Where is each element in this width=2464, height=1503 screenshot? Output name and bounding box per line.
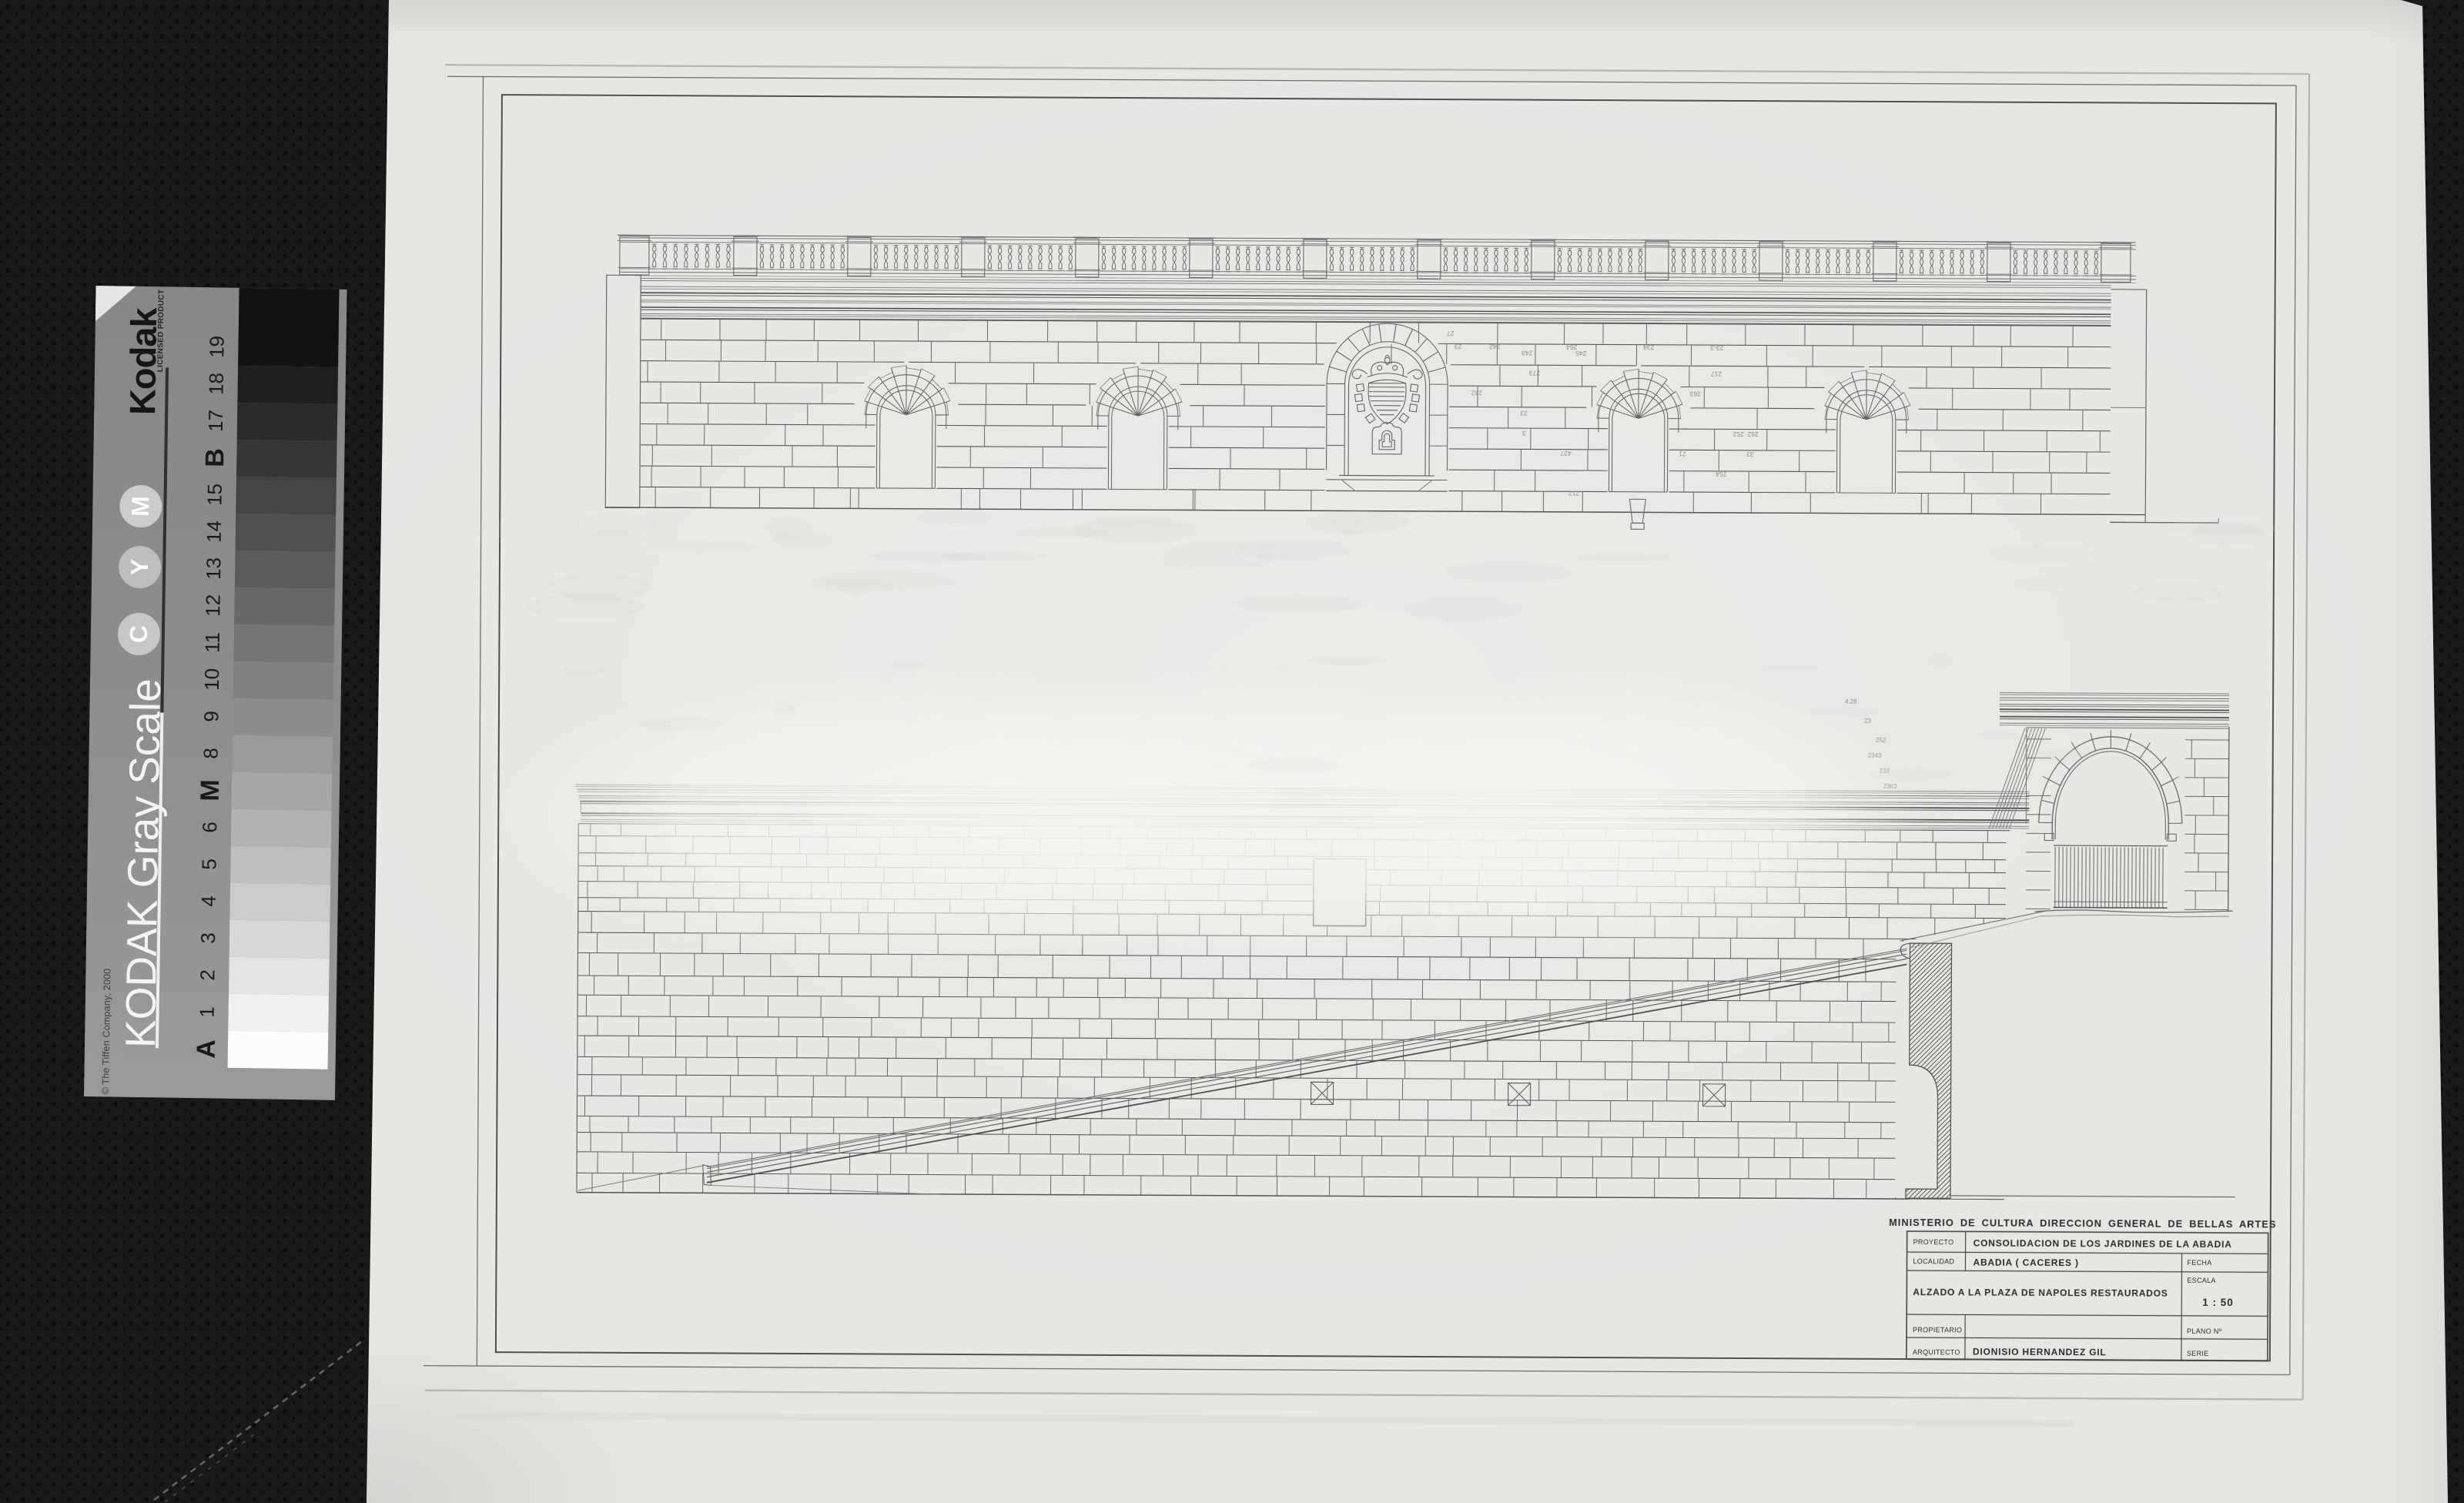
svg-text:3: 3 <box>1522 430 1526 437</box>
svg-text:252: 252 <box>1732 430 1744 438</box>
svg-text:23-3: 23-3 <box>1710 344 1723 352</box>
svg-text:33: 33 <box>1746 450 1754 458</box>
svg-text:4.28: 4.28 <box>1845 698 1857 705</box>
svg-text:262: 262 <box>1747 430 1759 438</box>
svg-text:217: 217 <box>1711 370 1722 378</box>
svg-text:254: 254 <box>1716 470 1727 478</box>
svg-text:PLANO Nº: PLANO Nº <box>2187 1327 2222 1335</box>
svg-text:ARQUITECTO: ARQUITECTO <box>1913 1348 1960 1356</box>
svg-text:SERIE: SERIE <box>2187 1350 2209 1357</box>
svg-text:ESCALA: ESCALA <box>2187 1277 2215 1284</box>
svg-text:MINISTERIO DE CULTURA DIRECCIO: MINISTERIO DE CULTURA DIRECCION GENERAL … <box>1889 1217 2276 1230</box>
svg-text:273: 273 <box>1529 370 1541 377</box>
svg-text:ALZADO A LA PLAZA DE NAPO: ALZADO A LA PLAZA DE NAPOLES RESTAURADOS <box>1913 1287 2168 1299</box>
svg-text:21: 21 <box>1679 450 1686 458</box>
svg-text:PROPIETARIO: PROPIETARIO <box>1913 1326 1962 1334</box>
svg-text:234: 234 <box>1643 343 1655 351</box>
svg-text:254: 254 <box>1566 343 1578 351</box>
svg-text:1 : 50: 1 : 50 <box>2202 1297 2234 1308</box>
svg-text:342: 342 <box>1489 343 1501 350</box>
svg-text:FECHA: FECHA <box>2187 1259 2211 1267</box>
svg-text:LOCALIDAD: LOCALIDAD <box>1913 1257 1954 1265</box>
svg-text:27: 27 <box>1447 330 1455 337</box>
svg-text:DIONISIO HERNANDEZ GIL: DIONISIO HERNANDEZ GIL <box>1973 1346 2107 1357</box>
svg-text:243: 243 <box>1522 350 1533 357</box>
svg-text:212: 212 <box>1568 490 1580 497</box>
svg-text:427: 427 <box>1560 450 1572 457</box>
svg-text:ABADIA ( CACERES ): ABADIA ( CACERES ) <box>1973 1257 2078 1268</box>
svg-text:23: 23 <box>1455 343 1462 350</box>
svg-text:23: 23 <box>1520 410 1528 417</box>
svg-text:CONSOLIDACION DE LOS JARDIN: CONSOLIDACION DE LOS JARDINES DE LA ABAD… <box>1974 1237 2232 1250</box>
svg-text:PROYECTO: PROYECTO <box>1913 1238 1954 1246</box>
svg-text:242: 242 <box>1471 389 1483 397</box>
svg-text:263: 263 <box>1690 390 1702 398</box>
